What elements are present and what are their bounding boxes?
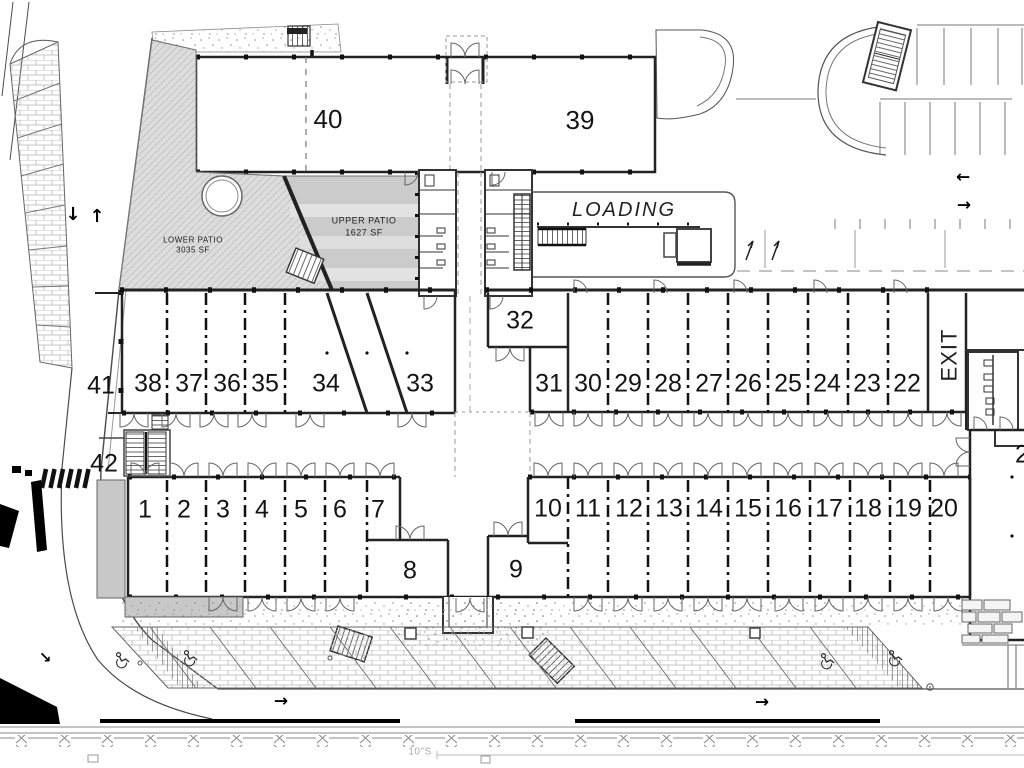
- shaded-service-area: [97, 480, 125, 598]
- unit-29: 29: [614, 372, 642, 397]
- unit-4: 4: [255, 498, 269, 523]
- unit-16: 16: [774, 497, 802, 522]
- sewer-line-label: 10"S: [408, 746, 431, 759]
- unit-31: 31: [535, 372, 563, 397]
- unit-10: 10: [534, 497, 562, 522]
- unit-2: 2: [177, 498, 191, 523]
- unit-7: 7: [371, 498, 385, 523]
- right-restrooms: [966, 350, 1024, 446]
- loading-ramp: [538, 229, 586, 245]
- unit-37: 37: [175, 372, 203, 397]
- unit-23: 23: [853, 372, 881, 397]
- fence-line: [0, 735, 1024, 747]
- unit-5: 5: [294, 498, 308, 523]
- left-road-down-arrow: ↓: [65, 206, 80, 224]
- unit-11: 11: [575, 497, 601, 522]
- bottom-sidewalk: [112, 598, 1024, 688]
- unit-35: 35: [251, 372, 279, 397]
- bottom-road-right-arrow-2: →: [755, 695, 769, 712]
- unit-8: 8: [403, 559, 417, 584]
- top-aisle-right-arrow: →: [957, 198, 971, 215]
- unit-34: 34: [312, 372, 340, 397]
- planter-circle: [202, 176, 242, 216]
- unit-26: 26: [734, 372, 762, 397]
- left-parking-strip: [10, 40, 72, 368]
- planter-box: [750, 628, 760, 638]
- unit-17: 17: [815, 497, 843, 522]
- planter-box: [522, 627, 533, 638]
- bike-rack-structure: [863, 22, 911, 90]
- unit-32: 32: [506, 309, 534, 334]
- unit-12: 12: [615, 497, 643, 522]
- unit-6: 6: [333, 498, 347, 523]
- unit-24: 24: [813, 372, 841, 397]
- unit-40: 40: [314, 106, 343, 132]
- unit-36: 36: [213, 372, 241, 397]
- dock-equipment: [677, 229, 711, 262]
- unit-9: 9: [509, 558, 523, 583]
- unit-20: 20: [930, 497, 958, 522]
- planter-box: [405, 628, 416, 639]
- corner-curve-arrow: ↘: [39, 651, 52, 666]
- unit-33: 33: [406, 372, 434, 397]
- unit-14: 14: [695, 497, 723, 522]
- unit-38: 38: [134, 372, 162, 397]
- lower-patio-label: LOWER PATIO 3035 SF: [163, 236, 223, 257]
- left-road-up-arrow: ↑: [89, 208, 104, 226]
- stall-arrow-icon: [746, 241, 753, 260]
- unit-13: 13: [655, 497, 683, 522]
- unit-3: 3: [216, 498, 230, 523]
- top-building: [196, 36, 655, 172]
- paver-blocks: [962, 600, 1024, 688]
- unit-19: 19: [894, 497, 922, 522]
- crosswalk: [42, 469, 89, 488]
- bottom-road-right-arrow-1: →: [274, 694, 288, 711]
- unit-22: 22: [893, 372, 921, 397]
- unit-15: 15: [734, 497, 762, 522]
- unit-18: 18: [854, 497, 882, 522]
- unit-41: 41: [87, 374, 115, 399]
- unit-42: 42: [90, 452, 118, 477]
- accessible-parking-icon: [113, 650, 131, 669]
- unit-30: 30: [574, 372, 602, 397]
- top-aisle-left-arrow: ←: [956, 170, 970, 187]
- landscape-island: [656, 30, 734, 119]
- unit-39: 39: [566, 107, 595, 133]
- unit-25: 25: [774, 372, 802, 397]
- stall-arrow-icon: [772, 241, 779, 260]
- unit-27: 27: [695, 372, 723, 397]
- upper-patio-label: UPPER PATIO 1627 SF: [332, 215, 397, 238]
- unit-21-partial: 2: [1015, 443, 1024, 468]
- unit-28: 28: [654, 372, 682, 397]
- loading-zone-label: LOADING: [572, 197, 676, 223]
- exit-corridor-label: EXIT: [936, 329, 965, 382]
- unit-1: 1: [138, 498, 152, 523]
- site-plan: 4039413837363534333231302928272625242322…: [0, 0, 1024, 768]
